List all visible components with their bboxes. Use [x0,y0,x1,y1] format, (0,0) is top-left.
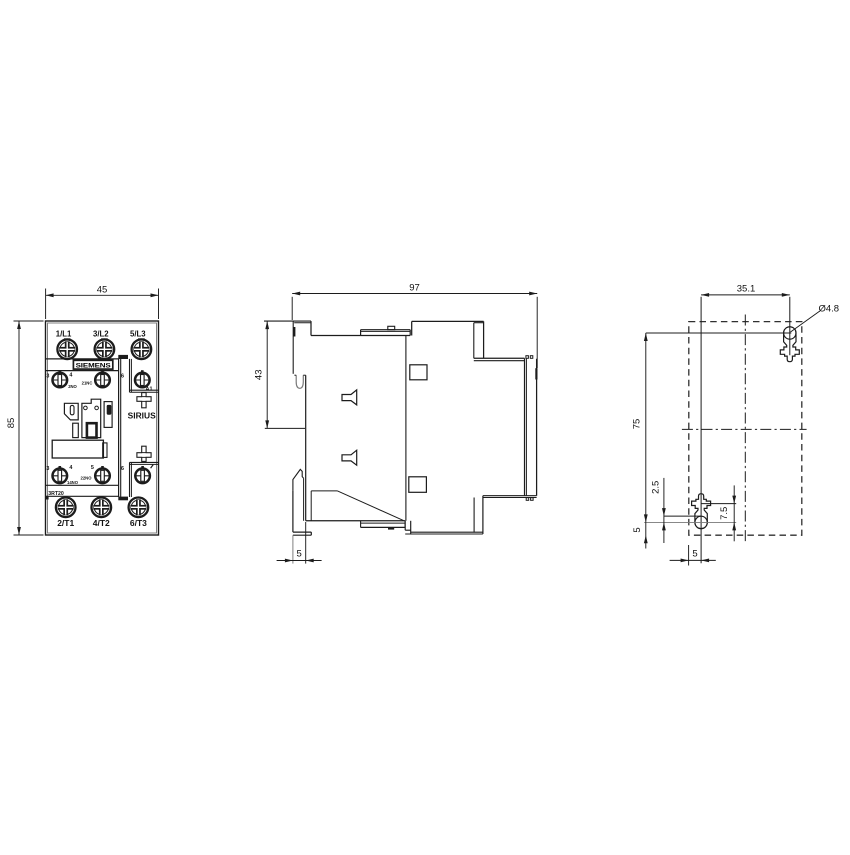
svg-text:5: 5 [632,527,643,532]
svg-text:3: 3 [46,374,49,380]
svg-text:5: 5 [297,549,302,560]
svg-text:6/T3: 6/T3 [130,518,147,528]
svg-text:SIRIUS: SIRIUS [128,411,157,420]
svg-text:6: 6 [121,466,124,472]
svg-text:5: 5 [91,465,94,471]
svg-text:21NC: 21NC [82,381,93,386]
svg-text:SIEMENS: SIEMENS [76,362,112,369]
svg-text:A1: A1 [146,387,153,393]
svg-text:14NO: 14NO [67,480,79,485]
svg-text:2.5: 2.5 [650,481,661,494]
svg-text:2NO: 2NO [68,384,77,389]
svg-text:5: 5 [692,549,697,560]
svg-text:4: 4 [69,465,72,471]
svg-text:7.5: 7.5 [719,507,730,520]
svg-text:3/L2: 3/L2 [93,330,109,339]
svg-text:6: 6 [121,374,124,380]
svg-text:Ø4.8: Ø4.8 [819,304,840,315]
svg-text:4/T2: 4/T2 [93,518,110,528]
svg-text:5/L3: 5/L3 [130,330,146,339]
svg-text:43: 43 [254,370,265,381]
svg-text:4: 4 [69,373,72,379]
svg-text:1/L1: 1/L1 [56,330,72,339]
svg-text:2/T1: 2/T1 [57,518,74,528]
svg-text:75: 75 [631,419,642,430]
svg-text:35.1: 35.1 [737,284,756,295]
svg-text:97: 97 [409,282,420,293]
svg-text:45: 45 [97,285,108,296]
svg-text:85: 85 [6,418,17,429]
svg-text:22NO: 22NO [81,475,93,480]
svg-text:3: 3 [46,466,49,472]
svg-text:3RT20: 3RT20 [48,491,64,497]
